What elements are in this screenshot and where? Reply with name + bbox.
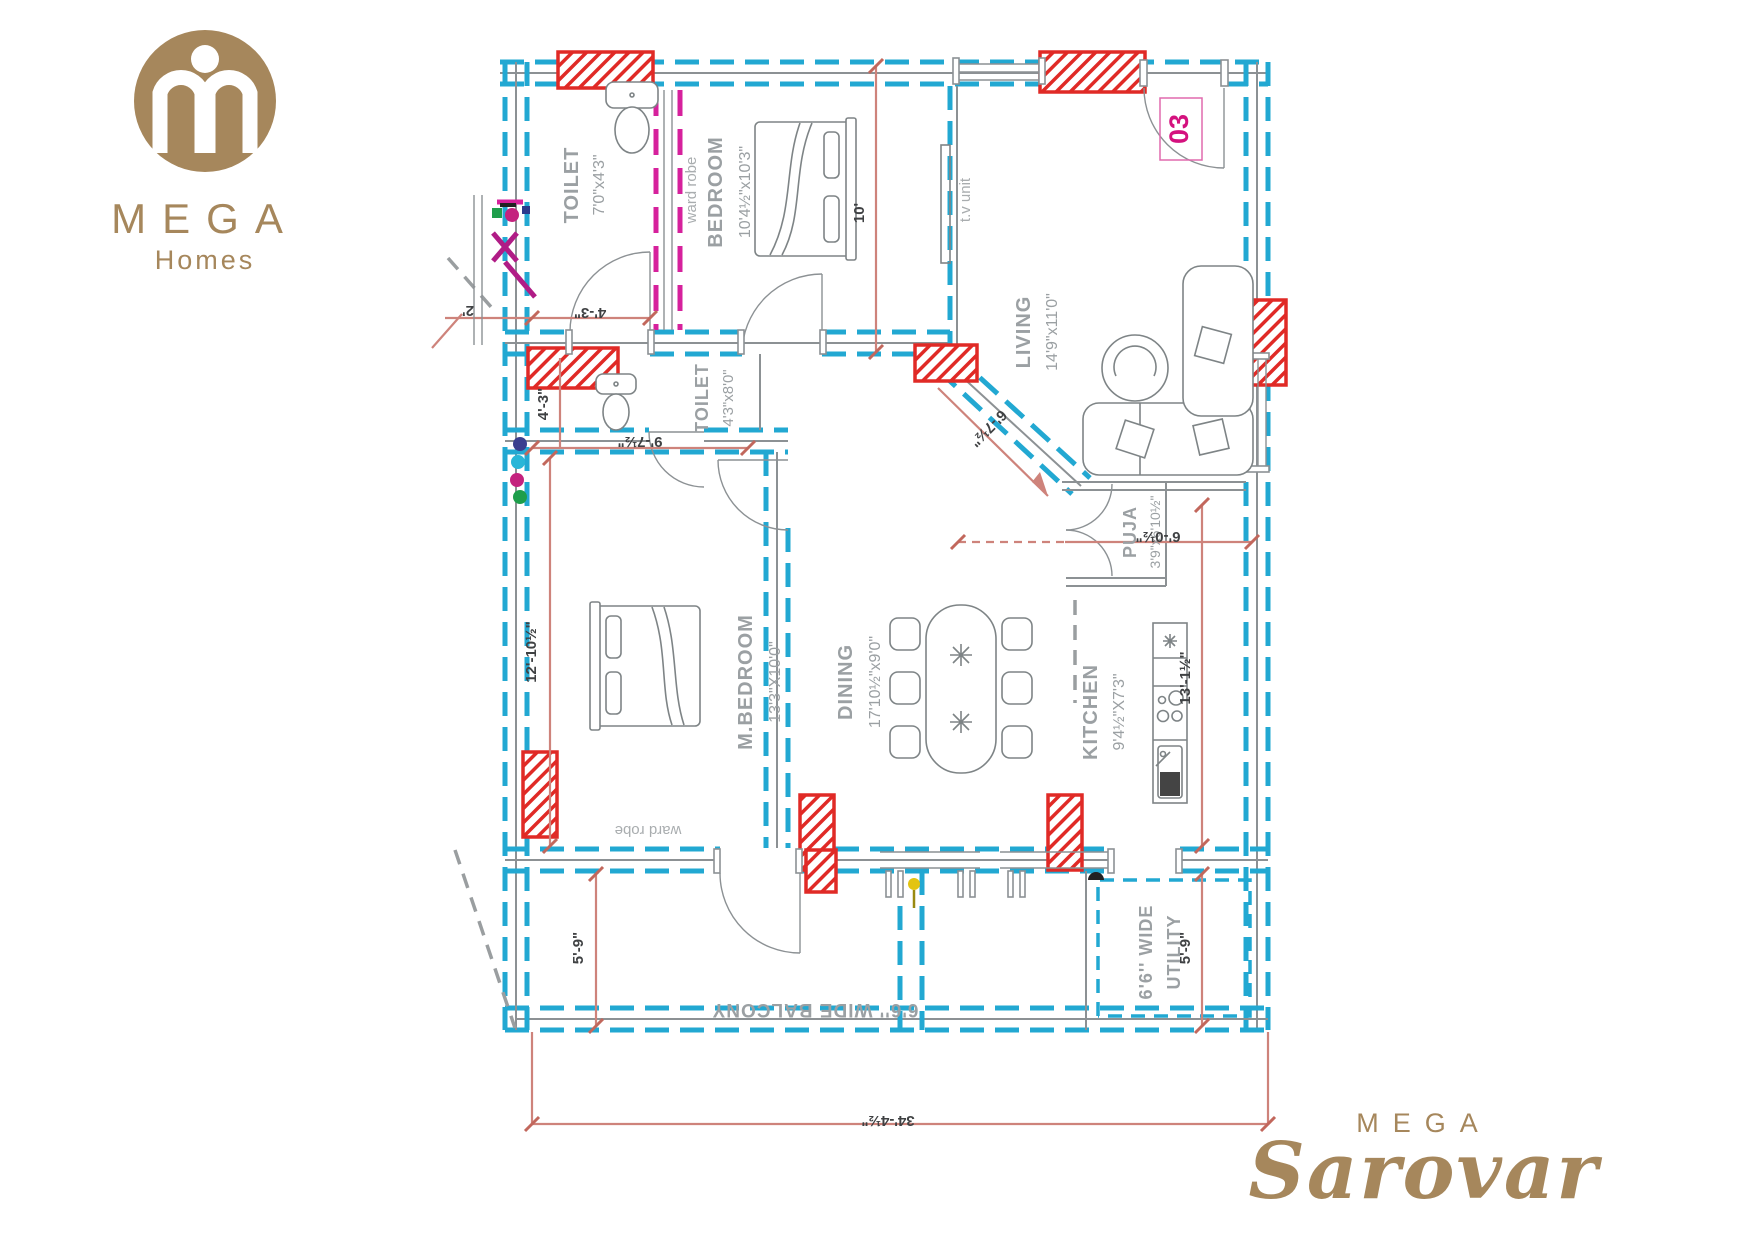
floor-plan: 03 TOILET 7'0"x4'3" ward robe BEDROOM 10… [0,0,1754,1241]
room-label-kitchen: KITCHEN [1080,664,1102,760]
room-size-mbedroom: 13'3"X10'0" [767,641,784,723]
wc-toilet1 [606,82,658,153]
room-label-living: LIVING [1013,296,1035,369]
room-size-dining: 17'10½"x9'0" [867,636,884,728]
dim-kitchen-h: 13'-1½" [1177,651,1194,704]
room-size-living: 14'9"x11'0" [1044,293,1061,371]
room-label-utility-line1: 6'6'' WIDE [1136,905,1156,1000]
room-size-toilet1: 7'0"x4'3" [591,154,608,215]
dim-mbedroom-h: 12'-10½" [523,621,540,683]
room-label-toilet2: TOILET [692,363,712,433]
door-balcony [714,849,802,953]
service-markers-mid [510,437,527,504]
dining-table [890,605,1032,773]
room-label-mbedroom: M.BEDROOM [735,614,757,750]
dim-bedroom-h: 10' [851,203,868,223]
kitchen-counter [1153,623,1187,803]
wc-toilet2 [596,374,636,430]
window-mbedroom-balcony [880,852,980,897]
unit-number-badge: 03 [1160,98,1202,160]
round-chair [1102,335,1168,401]
dim-puja-w: 6'-0½" [1136,528,1181,545]
dim-toilet2-h: 4'-3" [535,388,552,420]
room-label-bedroom: BEDROOM [705,136,727,247]
dim-total-width: 34'-4½" [861,1112,914,1129]
dim-utility-h: 5'-9" [1177,932,1194,964]
wardrobe-label-bedroom: ward robe [683,157,700,225]
room-size-bedroom: 10'4½"x10'3" [737,146,754,238]
room-label-dining: DINING [835,644,857,720]
mega-sarovar-logo: MEGA Sarovar [1184,1108,1664,1211]
bed-mbedroom [590,602,700,730]
room-label-balcony: 6'6'' WIDE BALCONY [712,999,919,1020]
counter-symbol [1163,634,1177,648]
project-name: Sarovar [1184,1133,1664,1211]
tv-unit-label: t.v unit [957,177,974,222]
service-markers-top [492,203,530,222]
wardrobe-label-mbedroom: ward robe [615,822,683,839]
dim-entry: 2' [462,302,474,319]
door-toilet1 [566,252,654,354]
door-utility [1108,849,1182,873]
room-label-toilet1: TOILET [561,147,583,224]
sofa-living [1083,266,1253,475]
unit-number: 03 [1164,114,1194,144]
door-puja-double [1066,484,1112,576]
bed-bedroom [755,118,856,260]
dim-toilet1-w: 4'-3" [574,304,606,321]
room-size-kitchen: 9'4½"X7'3" [1111,673,1128,750]
windows [880,58,1269,897]
dim-balcony-h: 5'-9" [570,932,587,964]
table-flower [950,644,972,666]
dim-toilet2-w: 9'-7½" [618,433,663,450]
room-size-toilet2: 4'3"x8'0" [720,369,737,426]
cut-line-top-left [448,258,492,308]
gas-point-marker [908,878,920,908]
table-flower [950,711,972,733]
